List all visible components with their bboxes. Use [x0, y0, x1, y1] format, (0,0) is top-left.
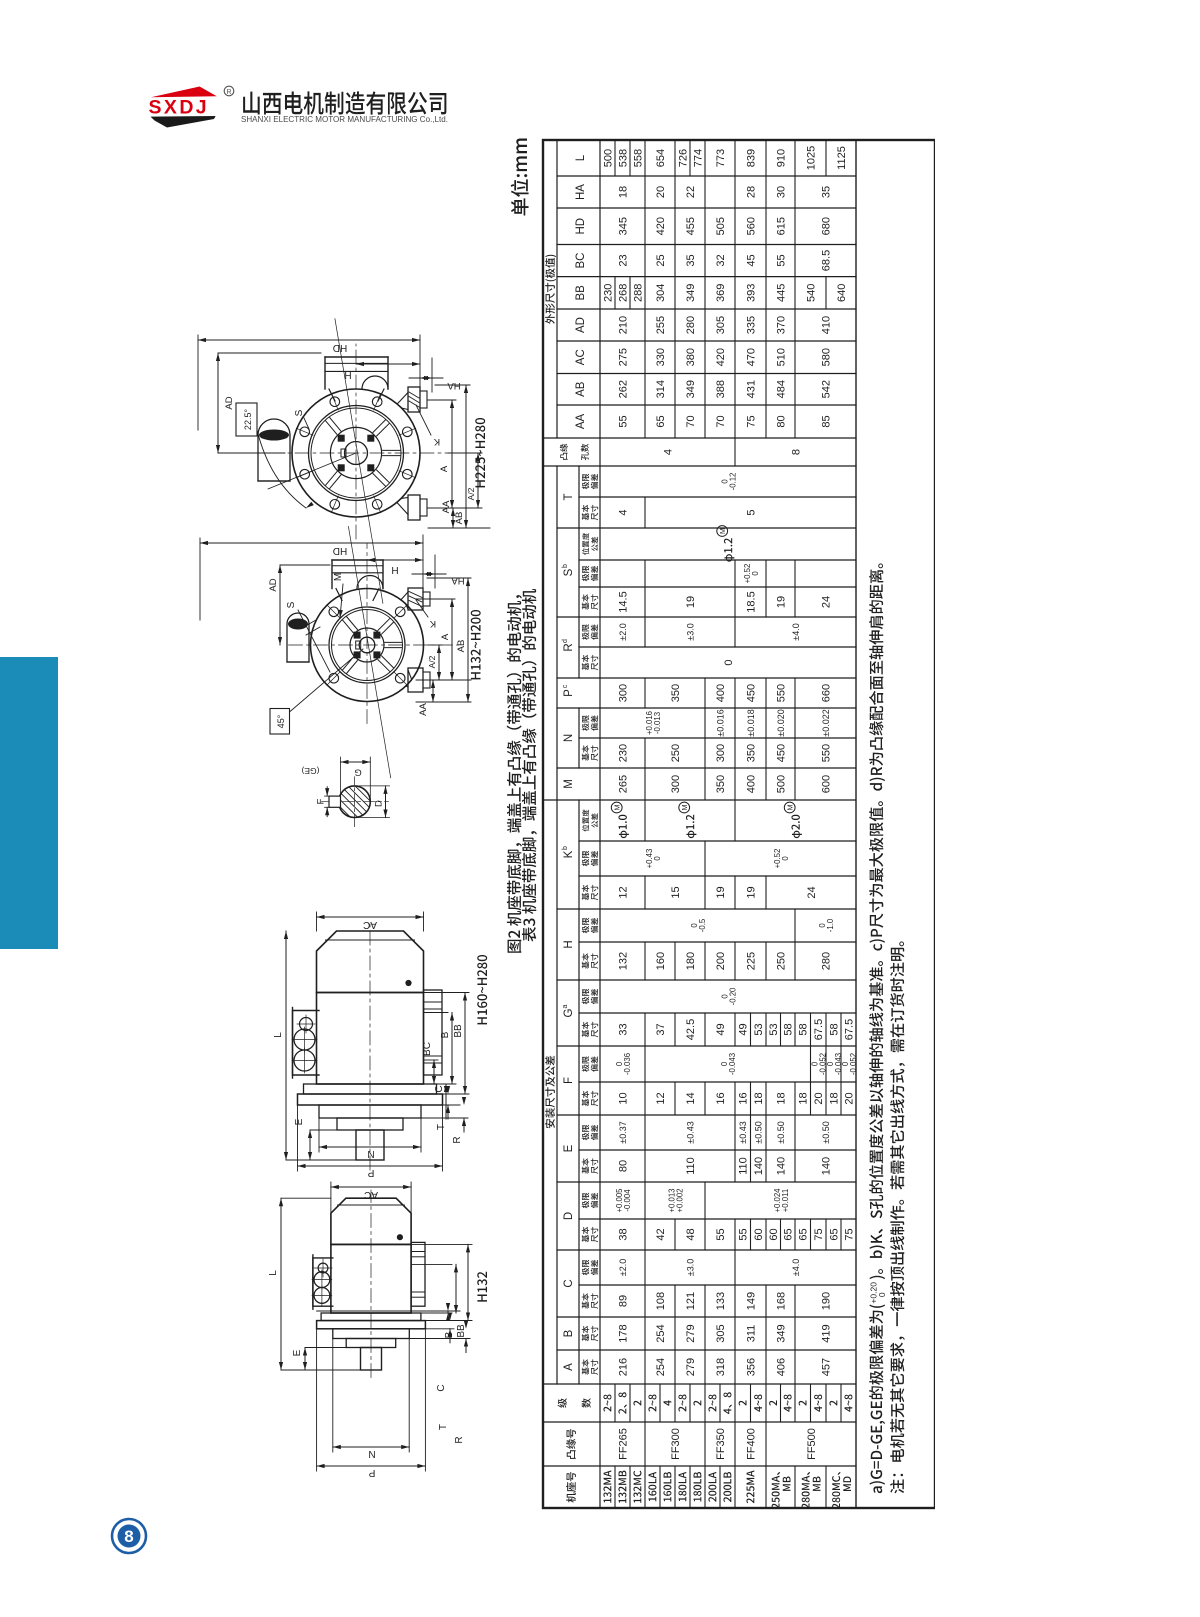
svg-text:538: 538 — [617, 149, 629, 167]
svg-text:M: M — [563, 779, 575, 789]
svg-text:75: 75 — [745, 415, 757, 427]
svg-text:1025: 1025 — [805, 146, 817, 170]
svg-text:80: 80 — [775, 415, 787, 427]
svg-text:505: 505 — [715, 217, 727, 235]
svg-text:L: L — [268, 1270, 279, 1276]
svg-text:132: 132 — [617, 952, 629, 970]
svg-text:445: 445 — [775, 284, 787, 302]
svg-text:110: 110 — [685, 1157, 697, 1175]
svg-text:133: 133 — [715, 1292, 727, 1310]
svg-text:22.5°: 22.5° — [243, 409, 253, 431]
svg-text:80: 80 — [617, 1160, 629, 1172]
svg-text:P: P — [368, 1467, 375, 1478]
svg-text:16: 16 — [738, 1092, 750, 1104]
svg-text:L: L — [575, 154, 587, 161]
svg-text:19: 19 — [745, 886, 757, 898]
svg-text:AA: AA — [441, 500, 452, 513]
svg-text:HD: HD — [333, 545, 347, 556]
svg-text:D: D — [374, 800, 385, 807]
svg-text:250: 250 — [670, 744, 682, 762]
svg-text:254: 254 — [655, 1324, 667, 1342]
svg-text:304: 304 — [655, 284, 667, 302]
svg-text:350: 350 — [745, 744, 757, 762]
svg-text:349: 349 — [685, 380, 697, 398]
svg-text:305: 305 — [715, 316, 727, 334]
svg-text:AD: AD — [575, 317, 587, 333]
svg-text:A: A — [439, 465, 450, 472]
svg-text:279: 279 — [685, 1358, 697, 1376]
svg-text:10: 10 — [617, 1092, 629, 1104]
svg-text:8: 8 — [790, 449, 802, 455]
svg-text:400: 400 — [715, 684, 727, 702]
svg-text:230: 230 — [617, 744, 629, 762]
svg-text:70: 70 — [685, 415, 697, 427]
svg-text:P: P — [367, 1167, 374, 1178]
svg-text:R: R — [563, 643, 575, 651]
svg-text:393: 393 — [745, 284, 757, 302]
svg-text:160: 160 — [655, 952, 667, 970]
svg-text:±4.0: ±4.0 — [791, 1259, 801, 1276]
svg-text:FF350: FF350 — [715, 1428, 727, 1460]
svg-text:75: 75 — [843, 1228, 855, 1240]
svg-text:C: C — [563, 1279, 575, 1287]
svg-text:550: 550 — [820, 744, 832, 762]
svg-text:D: D — [563, 1212, 575, 1220]
svg-text:E: E — [294, 1118, 305, 1125]
svg-text:1125: 1125 — [836, 146, 848, 170]
svg-text:45°: 45° — [276, 714, 286, 728]
svg-text:HA: HA — [447, 380, 461, 391]
svg-text:BC: BC — [422, 1042, 433, 1056]
svg-text:±0.020: ±0.020 — [776, 709, 786, 736]
svg-text:BC: BC — [575, 253, 587, 269]
svg-text:55: 55 — [738, 1228, 750, 1240]
svg-text:450: 450 — [745, 684, 757, 702]
svg-text:G: G — [563, 1008, 575, 1017]
svg-text:A: A — [440, 633, 451, 640]
svg-text:AB: AB — [454, 512, 465, 525]
svg-text:-0.5: -0.5 — [698, 918, 707, 932]
svg-text:M: M — [612, 805, 621, 811]
svg-text:335: 335 — [745, 316, 757, 334]
svg-text:542: 542 — [820, 380, 832, 398]
svg-text:33: 33 — [617, 1023, 629, 1035]
svg-text:14.5: 14.5 — [617, 591, 629, 612]
svg-text:20: 20 — [843, 1092, 855, 1104]
svg-text:F: F — [316, 798, 327, 804]
svg-text:H: H — [344, 369, 351, 380]
svg-text:+0.002: +0.002 — [675, 1188, 684, 1212]
svg-text:275: 275 — [617, 348, 629, 366]
svg-text:AD: AD — [268, 578, 279, 591]
svg-text:BB: BB — [575, 285, 587, 301]
svg-text:230: 230 — [602, 284, 614, 302]
svg-text:110: 110 — [738, 1157, 750, 1175]
svg-text:255: 255 — [655, 316, 667, 334]
svg-text:65: 65 — [655, 415, 667, 427]
svg-text:K: K — [563, 850, 575, 858]
svg-text:25: 25 — [655, 254, 667, 266]
svg-text:726: 726 — [677, 149, 689, 167]
svg-text:b: b — [562, 564, 569, 568]
svg-text:K: K — [433, 436, 440, 447]
svg-text:19: 19 — [715, 886, 727, 898]
svg-text:268: 268 — [617, 284, 629, 302]
svg-text:280: 280 — [820, 952, 832, 970]
svg-text:288: 288 — [632, 284, 644, 302]
svg-text:G: G — [354, 767, 361, 778]
svg-text:140: 140 — [753, 1157, 765, 1175]
svg-text:70: 70 — [715, 415, 727, 427]
svg-text:680: 680 — [820, 217, 832, 235]
svg-text:P: P — [563, 689, 575, 697]
svg-text:0: 0 — [877, 1292, 887, 1297]
svg-text:H: H — [391, 564, 398, 575]
svg-text:±2.0: ±2.0 — [618, 623, 628, 640]
svg-text:-0.052: -0.052 — [849, 1053, 858, 1075]
svg-text:216: 216 — [617, 1358, 629, 1376]
svg-text:262: 262 — [617, 380, 629, 398]
svg-text:±0.43: ±0.43 — [685, 1121, 695, 1143]
svg-text:12: 12 — [655, 1092, 667, 1104]
svg-text:c: c — [562, 684, 569, 688]
svg-text:18.5: 18.5 — [745, 591, 757, 612]
svg-text:HA: HA — [575, 184, 587, 200]
svg-text:140: 140 — [775, 1157, 787, 1175]
svg-text:350: 350 — [715, 775, 727, 793]
svg-text:FF300: FF300 — [670, 1428, 682, 1460]
svg-text:311: 311 — [745, 1325, 757, 1343]
svg-text:455: 455 — [685, 217, 697, 235]
svg-text:89: 89 — [617, 1295, 629, 1307]
svg-text:60: 60 — [768, 1228, 780, 1240]
svg-text:d: d — [562, 639, 569, 643]
svg-text:E: E — [292, 1349, 303, 1356]
svg-text:±3.0: ±3.0 — [685, 1259, 695, 1276]
svg-text:168: 168 — [775, 1292, 787, 1310]
svg-text:300: 300 — [670, 775, 682, 793]
svg-text:58: 58 — [828, 1023, 840, 1035]
svg-text:AB: AB — [456, 640, 467, 653]
svg-text:20: 20 — [813, 1092, 825, 1104]
svg-text:15: 15 — [670, 886, 682, 898]
svg-text:457: 457 — [820, 1358, 832, 1376]
svg-text:42.5: 42.5 — [685, 1019, 697, 1040]
svg-text:±3.0: ±3.0 — [685, 623, 695, 640]
svg-text:16: 16 — [715, 1092, 727, 1104]
svg-text:23: 23 — [617, 254, 629, 266]
svg-text:58: 58 — [798, 1023, 810, 1035]
svg-text:149: 149 — [745, 1292, 757, 1310]
svg-text:350: 350 — [670, 684, 682, 702]
svg-text:FF265: FF265 — [617, 1428, 629, 1460]
svg-text:±0.43: ±0.43 — [738, 1121, 748, 1143]
svg-text:A: A — [563, 1363, 575, 1371]
svg-text:30: 30 — [775, 186, 787, 198]
svg-text:R: R — [454, 1436, 465, 1443]
svg-text:14: 14 — [685, 1092, 697, 1104]
svg-text:349: 349 — [775, 1324, 787, 1342]
svg-text:4: 4 — [662, 449, 674, 455]
svg-text:910: 910 — [775, 149, 787, 167]
svg-text:-0.043: -0.043 — [728, 1053, 737, 1075]
svg-text:510: 510 — [775, 348, 787, 366]
svg-text:406: 406 — [775, 1358, 787, 1376]
svg-text:24: 24 — [820, 596, 832, 608]
svg-text:19: 19 — [775, 596, 787, 608]
svg-text:8: 8 — [124, 1527, 133, 1546]
svg-text:±0.016: ±0.016 — [715, 709, 725, 736]
svg-text:HD: HD — [333, 342, 347, 353]
svg-text:470: 470 — [745, 348, 757, 366]
svg-text:550: 550 — [775, 684, 787, 702]
svg-text:67.5: 67.5 — [813, 1019, 825, 1040]
svg-text:49: 49 — [738, 1023, 750, 1035]
svg-text:±0.37: ±0.37 — [618, 1121, 628, 1143]
svg-text:314: 314 — [655, 380, 667, 398]
svg-text:420: 420 — [655, 217, 667, 235]
svg-text:±0.018: ±0.018 — [746, 709, 756, 736]
svg-text:32: 32 — [715, 254, 727, 266]
svg-text:839: 839 — [745, 149, 757, 167]
svg-text:S: S — [563, 568, 575, 576]
svg-text:b: b — [562, 846, 569, 850]
svg-text:500: 500 — [775, 775, 787, 793]
svg-text:19: 19 — [685, 596, 697, 608]
svg-text:45: 45 — [745, 254, 757, 266]
svg-text:35: 35 — [685, 254, 697, 266]
svg-text:18: 18 — [775, 1092, 787, 1104]
svg-text:18: 18 — [828, 1092, 840, 1104]
svg-text:C: C — [436, 1384, 447, 1391]
svg-text:a: a — [562, 1004, 569, 1008]
svg-text:420: 420 — [715, 348, 727, 366]
svg-text:67.5: 67.5 — [843, 1019, 855, 1040]
svg-text:4: 4 — [617, 509, 629, 515]
svg-text:18: 18 — [617, 186, 629, 198]
svg-text:-1.0: -1.0 — [826, 918, 835, 932]
svg-text:265: 265 — [617, 775, 629, 793]
svg-text:T: T — [563, 493, 575, 500]
svg-text:K: K — [429, 618, 436, 629]
svg-text:254: 254 — [655, 1358, 667, 1376]
svg-text:20: 20 — [655, 186, 667, 198]
svg-text:450: 450 — [775, 744, 787, 762]
svg-text:58: 58 — [783, 1023, 795, 1035]
svg-text:18: 18 — [753, 1092, 765, 1104]
svg-text:65: 65 — [828, 1228, 840, 1240]
svg-text:250: 250 — [775, 952, 787, 970]
svg-text:38: 38 — [617, 1228, 629, 1240]
svg-text:E: E — [563, 1144, 575, 1152]
svg-text:M: M — [680, 805, 689, 811]
svg-text:540: 540 — [805, 284, 817, 302]
svg-text:R: R — [452, 1136, 463, 1143]
svg-text:S: S — [294, 409, 305, 416]
svg-text:178: 178 — [617, 1324, 629, 1342]
svg-text:-0.004: -0.004 — [623, 1189, 632, 1212]
svg-text:AD: AD — [224, 396, 235, 409]
svg-text:AA: AA — [575, 414, 587, 430]
svg-text:349: 349 — [685, 284, 697, 302]
svg-text:0: 0 — [751, 571, 760, 576]
svg-text:53: 53 — [768, 1023, 780, 1035]
svg-text:75: 75 — [813, 1228, 825, 1240]
svg-text:12: 12 — [617, 886, 629, 898]
svg-text:±0.50: ±0.50 — [776, 1121, 786, 1143]
svg-text:35: 35 — [820, 186, 832, 198]
svg-text:85: 85 — [820, 415, 832, 427]
svg-text:-0.013: -0.013 — [653, 712, 662, 734]
svg-text:+0.011: +0.011 — [781, 1189, 790, 1213]
svg-text:AB: AB — [575, 381, 587, 397]
svg-text:660: 660 — [820, 684, 832, 702]
svg-text:280: 280 — [685, 316, 697, 334]
svg-text:300: 300 — [715, 744, 727, 762]
svg-text:FF500: FF500 — [806, 1428, 818, 1460]
svg-text:615: 615 — [775, 217, 787, 235]
svg-text:N: N — [563, 734, 575, 742]
svg-text:330: 330 — [655, 348, 667, 366]
svg-text:210: 210 — [617, 316, 629, 334]
svg-text:48: 48 — [685, 1228, 697, 1240]
svg-text:0: 0 — [653, 856, 662, 861]
svg-text:484: 484 — [775, 380, 787, 398]
svg-text:R: R — [226, 89, 231, 96]
svg-text:-0.036: -0.036 — [623, 1053, 632, 1075]
svg-text:108: 108 — [655, 1292, 667, 1310]
svg-text:L: L — [273, 1032, 284, 1038]
svg-text:279: 279 — [685, 1324, 697, 1342]
svg-text:49: 49 — [715, 1023, 727, 1035]
svg-text:24: 24 — [806, 886, 818, 898]
svg-text:0: 0 — [781, 856, 790, 861]
svg-text:M: M — [718, 528, 727, 534]
svg-text:356: 356 — [745, 1358, 757, 1376]
svg-text:500: 500 — [602, 149, 614, 167]
svg-text:A/2: A/2 — [427, 655, 437, 668]
svg-text:S: S — [286, 601, 297, 608]
svg-text:B: B — [440, 1031, 451, 1038]
svg-text:±0.50: ±0.50 — [754, 1121, 764, 1143]
svg-text:774: 774 — [692, 149, 704, 167]
svg-text:60: 60 — [753, 1228, 765, 1240]
svg-text:BB: BB — [453, 1024, 464, 1038]
svg-text:380: 380 — [685, 348, 697, 366]
svg-text:410: 410 — [820, 316, 832, 334]
svg-text:H: H — [563, 940, 575, 948]
svg-text:C: C — [434, 1085, 445, 1092]
svg-text:773: 773 — [715, 149, 727, 167]
svg-text:M: M — [333, 573, 344, 581]
svg-text:HA: HA — [451, 575, 465, 586]
svg-text:28: 28 — [745, 186, 757, 198]
svg-text:400: 400 — [745, 775, 757, 793]
svg-text:T: T — [436, 1124, 447, 1130]
svg-text:65: 65 — [783, 1228, 795, 1240]
svg-text:369: 369 — [715, 284, 727, 302]
svg-text:55: 55 — [617, 415, 629, 427]
svg-text:N: N — [368, 1448, 375, 1459]
svg-text:HD: HD — [575, 218, 587, 235]
svg-text:200: 200 — [715, 952, 727, 970]
svg-text:140: 140 — [820, 1157, 832, 1175]
svg-text:68.5: 68.5 — [820, 250, 832, 271]
svg-text:±0.50: ±0.50 — [821, 1121, 831, 1143]
svg-text:318: 318 — [715, 1358, 727, 1376]
svg-text:SHANXI ELECTRIC MOTOR MANUFACT: SHANXI ELECTRIC MOTOR MANUFACTURING Co.,… — [241, 114, 448, 124]
svg-text:654: 654 — [655, 149, 667, 167]
svg-text:22: 22 — [685, 186, 697, 198]
svg-text:42: 42 — [655, 1228, 667, 1240]
svg-text:AA: AA — [418, 703, 429, 716]
svg-text:37: 37 — [655, 1023, 667, 1035]
svg-text:AC: AC — [575, 349, 587, 365]
svg-text:225: 225 — [745, 952, 757, 970]
svg-text:190: 190 — [820, 1292, 832, 1310]
svg-text:±4.0: ±4.0 — [791, 623, 801, 640]
svg-text:N: N — [367, 1148, 374, 1159]
svg-text:345: 345 — [617, 217, 629, 235]
svg-text:-0.12: -0.12 — [728, 473, 737, 491]
svg-text:305: 305 — [715, 1324, 727, 1342]
svg-text:53: 53 — [753, 1023, 765, 1035]
svg-text:5: 5 — [745, 509, 757, 515]
svg-text:55: 55 — [775, 254, 787, 266]
svg-text:B: B — [563, 1329, 575, 1337]
svg-text:431: 431 — [745, 380, 757, 398]
svg-text:F: F — [563, 1077, 575, 1084]
svg-text:FF400: FF400 — [745, 1428, 757, 1460]
svg-text:640: 640 — [836, 284, 848, 302]
svg-text:300: 300 — [617, 684, 629, 702]
svg-text:65: 65 — [798, 1228, 810, 1240]
svg-text:AC: AC — [363, 919, 377, 930]
svg-text:18: 18 — [798, 1092, 810, 1104]
svg-text:0: 0 — [723, 659, 735, 665]
svg-text:AC: AC — [364, 1189, 378, 1200]
svg-text:121: 121 — [685, 1292, 697, 1310]
svg-text:55: 55 — [715, 1228, 727, 1240]
svg-text:600: 600 — [820, 775, 832, 793]
svg-text:558: 558 — [632, 149, 644, 167]
svg-text:SXDJ: SXDJ — [149, 96, 210, 118]
svg-text:(GE): (GE) — [301, 766, 319, 776]
svg-text:-0.20: -0.20 — [728, 987, 737, 1005]
svg-text:580: 580 — [820, 348, 832, 366]
svg-text:388: 388 — [715, 380, 727, 398]
svg-text:560: 560 — [745, 217, 757, 235]
svg-text:370: 370 — [775, 316, 787, 334]
svg-text:419: 419 — [820, 1324, 832, 1342]
svg-text:±2.0: ±2.0 — [618, 1259, 628, 1276]
svg-text:A/2: A/2 — [466, 487, 476, 500]
svg-text:180: 180 — [685, 952, 697, 970]
svg-text:T: T — [438, 1424, 449, 1430]
svg-text:±0.022: ±0.022 — [821, 709, 831, 736]
svg-text:M: M — [785, 805, 794, 811]
